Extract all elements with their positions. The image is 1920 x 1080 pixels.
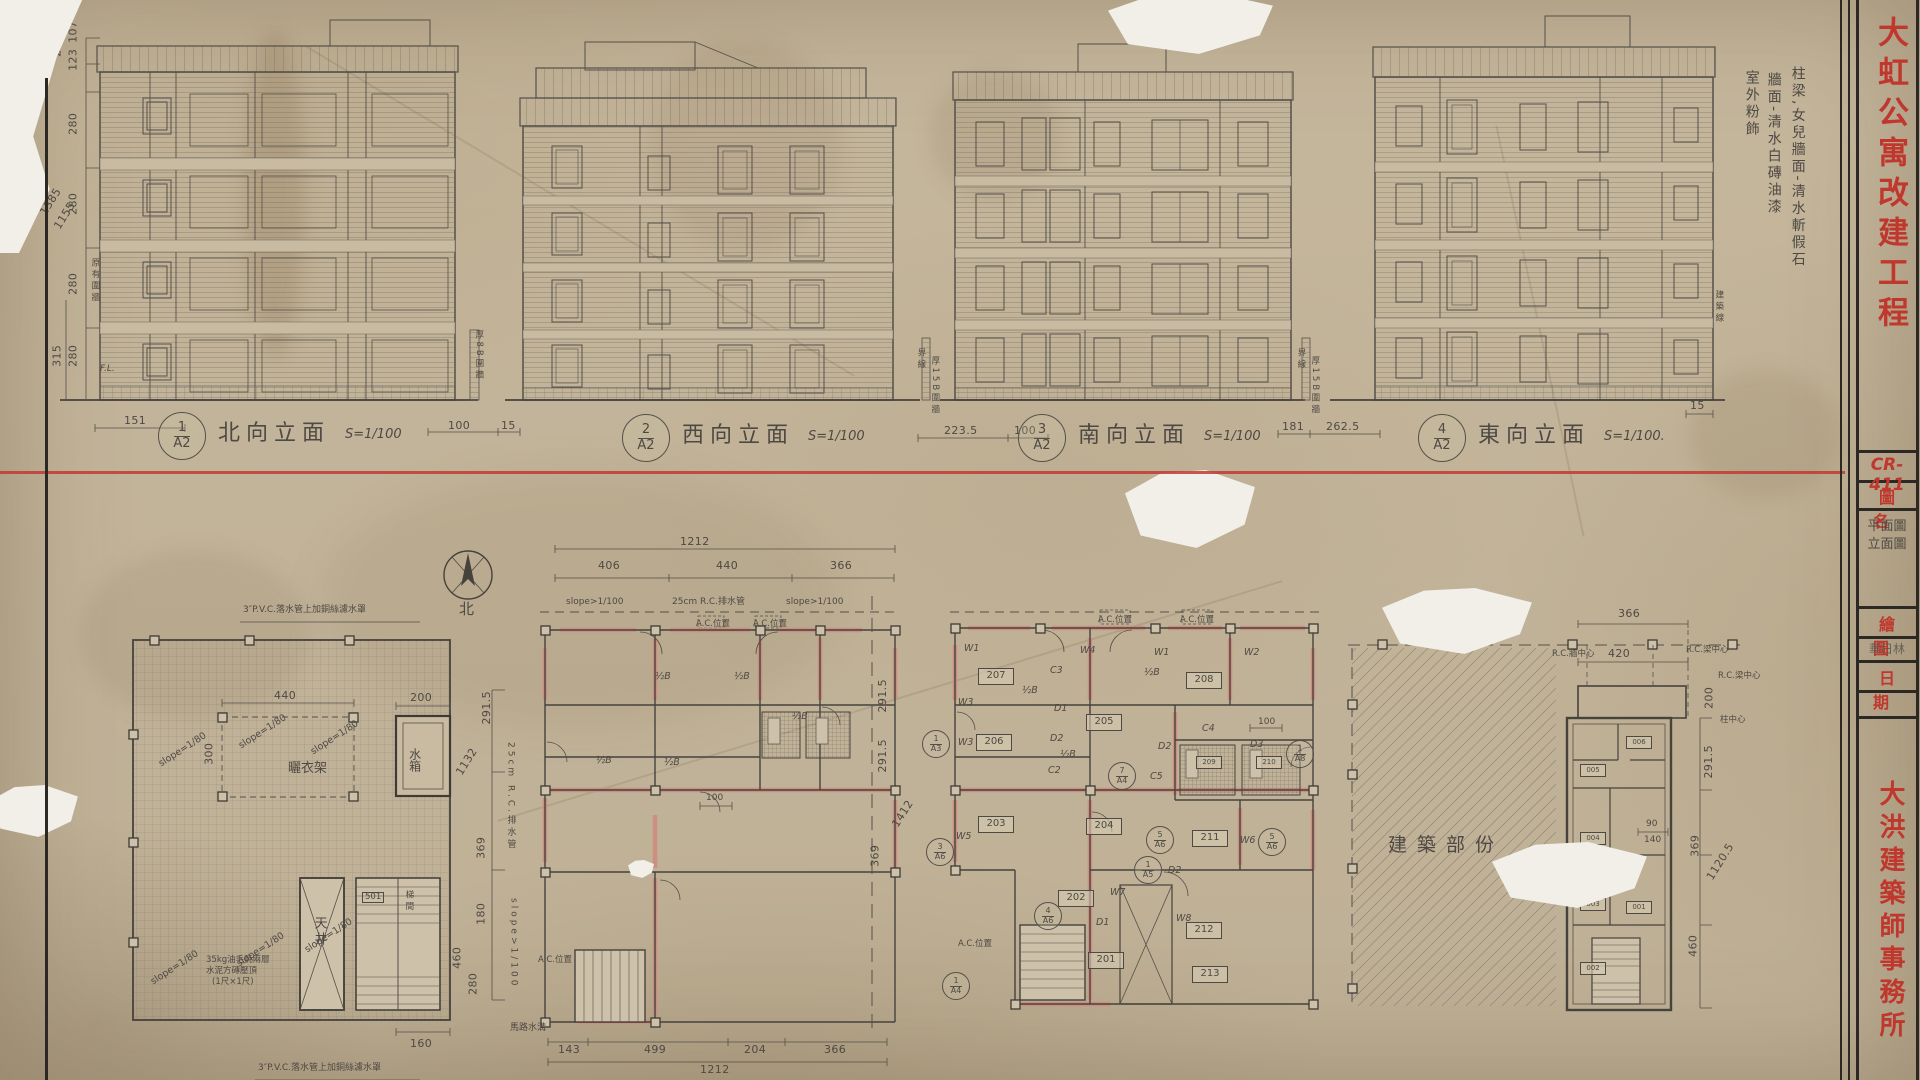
ref-sheet: A5 [1143,871,1154,879]
ref-number: 2 [638,423,654,439]
dim-label: 140 [1644,836,1661,845]
dim-label: 280 [67,345,79,367]
dim-label: 369 [1689,835,1701,857]
light-well-label: 天井 [312,916,326,948]
titleblock-divider [1856,660,1917,663]
titleblock-divider [1856,450,1917,453]
room-number: 205 [1086,714,1122,731]
finish-note: 室外粉飾 [1744,70,1759,138]
door-mark: D2 [1158,742,1171,752]
window-mark: W6 [1240,836,1255,846]
plan-ref-bubble: 5A6 [1258,828,1286,856]
elevation-scale: S=1/100 [808,430,865,444]
wall-thickness-label: ½B [1022,686,1038,696]
plan-ref-bubble: 1A5 [1134,856,1162,884]
dim-label: 315 [51,345,63,367]
room-number: 005 [1580,764,1606,777]
plan-ref-bubble: 5A6 [1146,826,1174,854]
door-mark: D2 [1168,866,1181,876]
drawing-name-value: 立面圖 [1857,533,1917,552]
room-number: 211 [1192,830,1228,847]
door-mark: D1 [1096,918,1109,928]
titleblock-border [1848,0,1850,1080]
ref-sheet: A8 [1295,755,1306,763]
dim-label: 291.5 [877,739,889,773]
dim-label: 143 [558,1044,580,1056]
room-number: 209 [1196,756,1222,769]
dim-label: 262.5 [1326,421,1360,433]
door-mark: D3 [1250,740,1263,750]
plan-ref-bubble: 3A6 [926,838,954,866]
pvc-note: 3″P.V.C.落水管上加銅絲濾水罩 [258,1064,381,1073]
elevation-title: 東向立面 [1478,424,1590,447]
window-mark: W2 [1244,648,1259,658]
elevation-ref-bubble: 1 A2 [158,412,206,460]
closet-mark: C4 [1202,724,1215,734]
closet-mark: C3 [1050,666,1063,676]
room-number: 210 [1256,756,1282,769]
room-number: 002 [1580,962,1606,975]
ac-position-label: A.C.位置 [1098,616,1132,625]
door-mark: D1 [1054,704,1067,714]
finish-note: 牆面-清水白磚油漆 [1766,72,1781,216]
dim-label: 1212 [700,1064,730,1076]
room-number: 202 [1058,890,1094,907]
roof-material-note: 35kg油毛氈兩層 [206,956,270,965]
wall-note: 厚15B圍牆 [1310,356,1319,416]
elevation-scale: S=1/100 [345,428,402,442]
elevation-west [520,42,896,400]
dim-label: 15 [1690,400,1705,412]
window-mark: W5 [956,832,971,842]
room-number: 201 [1088,952,1124,969]
window-mark: W3 [958,738,973,748]
dim-label: 200 [410,692,432,704]
plan-ref-bubble: 4A6 [1034,902,1062,930]
dim-label: 366 [830,560,852,572]
building-line-note: 建築線 [1714,290,1723,325]
dim-label: 291.5 [1703,745,1715,779]
dim-label: 151 [124,415,146,427]
boundary-note: 界線 [1296,348,1305,371]
elevation-east [1373,16,1715,400]
wall-thickness-label: ½B [596,756,612,766]
roof-material-note: (1尺×1尺) [212,978,254,987]
window-mark: W1 [1154,648,1169,658]
window-mark: W7 [1110,888,1125,898]
dim-label: 291.5 [877,679,889,713]
blueprint-sheet: 107 123 230 280 280 280 280 315 1385 115… [0,0,1920,1080]
titleblock-divider [1856,716,1917,719]
sheet-border-line [45,78,48,1080]
ref-sheet: A2 [173,437,190,451]
ref-sheet: A4 [1117,777,1128,785]
stair-number: 501 [362,892,384,903]
ac-position-label: A.C.位置 [1180,616,1214,625]
ref-sheet: A2 [1033,439,1050,453]
slope-note: slope>1/100 [566,598,623,607]
dim-label: 366 [1618,608,1640,620]
existing-wall-note: 原有圍牆 [90,258,99,304]
dim-label: 406 [598,560,620,572]
room-number: 206 [976,734,1012,751]
room-number: 208 [1186,672,1222,689]
ref-sheet: A6 [1267,843,1278,851]
wall-note: 厚8B圍牆 [474,330,483,382]
ref-number: 3 [1034,423,1050,439]
room-number: 001 [1626,901,1652,914]
titleblock-divider [1856,606,1917,609]
dim-label: 291.5 [481,691,493,725]
window-mark: W4 [1080,646,1095,656]
ref-number: 1 [174,421,190,437]
dim-label: 280 [67,273,79,295]
centerline-label: R.C.牆中心 [1552,650,1594,659]
north-label: 北 [459,602,474,618]
dim-label: 1212 [680,536,710,548]
dim-label: 369 [475,837,487,859]
wall-thickness-label: ½B [655,672,671,682]
room-number: 203 [978,816,1014,833]
elevation-scale: S=1/100 [1204,430,1261,444]
architect-office-name: 大洪建築師事務所 [1872,780,1909,1044]
dim-label: 440 [716,560,738,572]
ac-position-label: A.C.位置 [753,620,787,629]
dim-label: 460 [1687,935,1699,957]
dim-label: 366 [824,1044,846,1056]
drain-note: 25cm R.C.排水管 [505,742,514,851]
window-mark: W1 [964,644,979,654]
drying-rack-label: 曬衣架 [288,762,327,776]
floor-level-label: F.L. [100,365,115,374]
draftsman-name: 華日林 [1857,640,1917,657]
room-number: 213 [1192,966,1228,983]
wall-note: 厚15B圍牆 [930,356,939,416]
dim-label: 123 [67,49,79,71]
date-label: 日期 [1857,665,1917,713]
dim-label: 460 [451,947,463,969]
ref-sheet: A6 [1043,917,1054,925]
ac-position-label: A.C.位置 [696,620,730,629]
stair-label: 梯間 [404,890,413,913]
dim-label: 280 [67,113,79,135]
room-number: 006 [1626,736,1652,749]
titleblock-border [1840,0,1842,1080]
centerline-label: R.C.梁中心 [1686,646,1728,655]
slope-note: slope>1/100 [786,598,843,607]
plan-ref-bubble: 1A8 [1286,740,1314,768]
room-number: 207 [978,668,1014,685]
closet-mark: C2 [1048,766,1061,776]
elevation-ref-bubble: 2 A2 [622,414,670,462]
dim-label: 100 [706,794,723,803]
room-number: 204 [1086,818,1122,835]
roof-material-note: 水泥方磚壓頂 [206,967,257,976]
wall-thickness-label: ½B [1060,750,1076,760]
elevation-south [953,44,1293,400]
dim-label: 300 [203,743,215,765]
dim-label: 223.5 [944,425,978,437]
centerline-label: R.C.梁中心 [1718,672,1760,681]
construction-part-label: 建築部份 [1388,836,1504,856]
drawing-name-value: 平面圖 [1857,515,1917,534]
plan-ref-bubble: 1A3 [922,730,950,758]
elevation-title: 南向立面 [1078,424,1190,447]
dim-label: 180 [475,903,487,925]
drawing-linework [0,0,1920,1080]
wall-thickness-label: ½B [792,712,808,722]
elevation-ref-bubble: 4 A2 [1418,414,1466,462]
ref-sheet: A6 [1155,841,1166,849]
ref-sheet: A2 [1433,439,1450,453]
elevation-north [97,20,458,400]
dim-label: 100 [448,420,470,432]
ref-sheet: A3 [931,745,942,753]
wall-thickness-label: ½B [734,672,750,682]
wall-thickness-label: ½B [664,758,680,768]
slope-note: slope>1/100 [508,898,517,988]
dim-label: 499 [644,1044,666,1056]
red-separator-line [0,471,1845,474]
dim-label: 160 [410,1038,432,1050]
wall-thickness-label: ½B [1144,668,1160,678]
dim-label: 369 [869,845,881,867]
elevation-scale: S=1/100. [1604,430,1665,444]
elevation-title: 北向立面 [218,422,330,445]
ac-position-label: A.C.位置 [958,940,992,949]
boundary-note: 界線 [916,348,925,371]
ref-sheet: A6 [935,853,946,861]
north-compass [444,551,492,599]
ref-sheet: A2 [637,439,654,453]
dim-label: 280 [467,973,479,995]
road-gutter-label: 馬路水溝 [510,1024,546,1033]
finish-note: 柱梁,女兒牆面-清水斬假石 [1790,66,1805,269]
water-tank-label: 水箱 [408,748,421,772]
ref-number: 4 [1434,423,1450,439]
window-mark: W3 [958,698,973,708]
dim-label: 90 [1646,820,1657,829]
dim-label: 181 [1282,421,1304,433]
drain-note: 25cm R.C.排水管 [672,598,745,607]
window-mark: W8 [1176,914,1191,924]
door-mark: D2 [1050,734,1063,744]
plan-ref-bubble: 1A4 [942,972,970,1000]
plan-ref-bubble: 7A4 [1108,762,1136,790]
centerline-label: 柱中心 [1720,716,1746,725]
ref-sheet: A4 [951,987,962,995]
room-number: 212 [1186,922,1222,939]
dim-label: 200 [1703,687,1715,709]
pvc-note: 3″P.V.C.落水管上加銅絲濾水罩 [243,606,366,615]
project-title: 大虹公寓改建工程 [1868,16,1913,336]
elevation-ref-bubble: 3 A2 [1018,414,1066,462]
ac-position-label: A.C.位置 [538,956,572,965]
dim-label: 420 [1608,648,1630,660]
elevation-title: 西向立面 [682,424,794,447]
dim-label: 15 [501,420,516,432]
dim-label: 100 [1258,718,1275,727]
dim-label: 204 [744,1044,766,1056]
closet-mark: C5 [1150,772,1163,782]
dim-label: 440 [274,690,296,702]
